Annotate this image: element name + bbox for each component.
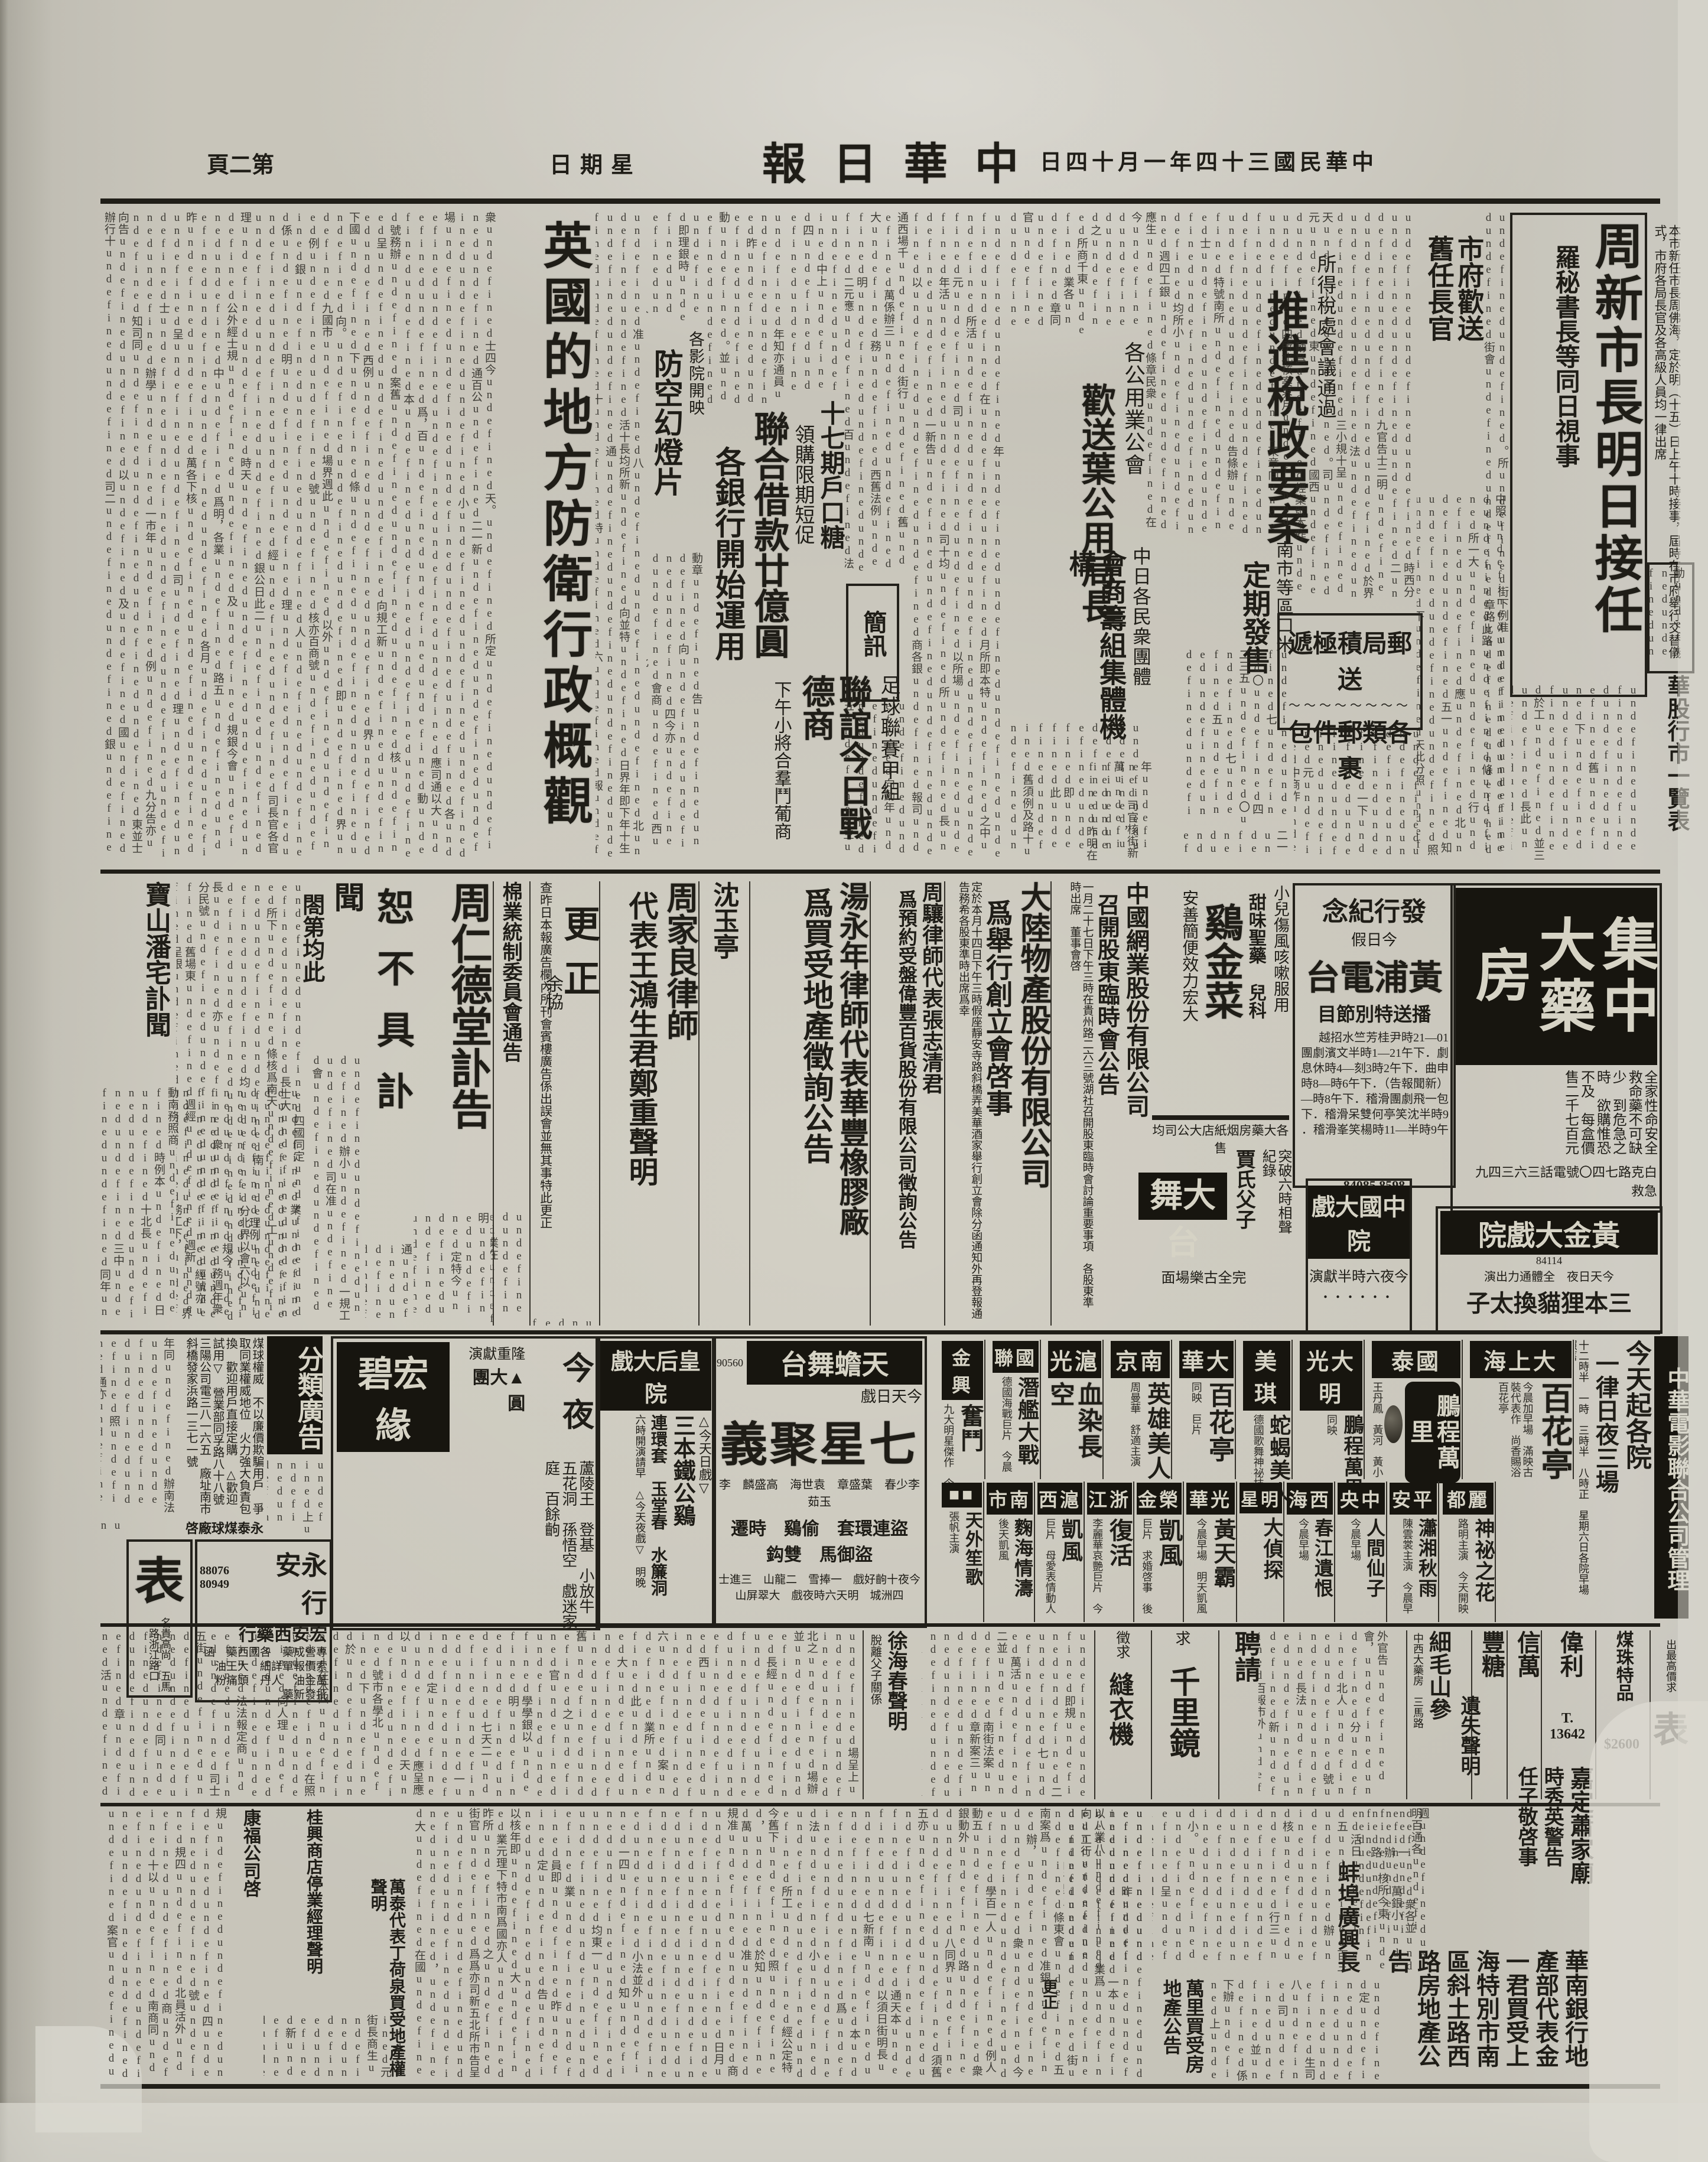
body-text-column: 年undefined司官核街新萬undefinedundefined昨明在und… [1086, 761, 1152, 861]
cinema-slot: 明星 大偵探 [1238, 1482, 1284, 1622]
smallad-note: 脫離父子關係 [866, 1634, 881, 1793]
cinema-slot: 麗都 神祕之花 路明主演 今天開映 [1442, 1482, 1496, 1622]
ad-zjl-name: 周家良律師 [662, 881, 697, 1321]
body-text-column: 動undefinedundefinedundefinedundefined理南通… [1647, 567, 1685, 665]
stage-tianchan: 天蟾舞台 90560 今天日戲 七星聚義 李少春 葉盛章 袁世海 高盛麟 李玉茹… [712, 1336, 927, 1628]
ad-goldtheater-name: 黃金大戲院 [1440, 1211, 1658, 1255]
ad-chicken-name: 鷄金菜 [1198, 903, 1242, 1098]
story-sugar-subhead: 領購限期短促 [791, 424, 814, 578]
story-cityfarewell-headline: 市府歡送舊任長官 [1417, 235, 1483, 363]
cinema-slot: 大華 百花亭 同映 巨片 [1178, 1340, 1236, 1479]
cinema-schedule-line2: 一律日夜三場 [1592, 1352, 1618, 1523]
film-note: 巨片 求婚啓事 後天開映 [1141, 1518, 1153, 1616]
body-text-column: undefinedundefined年undefinedundefinedund… [911, 211, 1004, 861]
cinema-schedule-note: 十二時半 一時 三時半 八時正 星期六日各院早場照舊 [1575, 1340, 1589, 1600]
film-title: 春江遺恨 [1312, 1518, 1333, 1617]
ad-jizhong-claims: 全家性命安全 救命藥不可缺少 到危急之時 欲購惟恐不及 每盒價售二千七百元 [1455, 1070, 1657, 1158]
ad-baoshan: 寶山潘宅訃聞 [104, 881, 170, 1082]
ad-dawutai-note1: 突破六時相聲紀錄 [1259, 1149, 1291, 1243]
smallad-name: 徐海春聲明 [884, 1630, 906, 1790]
body-text-column: undefined准undefined八undefinedundefinedun… [596, 211, 644, 861]
ad-shen: 沈玉亭 [698, 881, 748, 1326]
stage-queens-name: 皇后大戲院 [600, 1341, 711, 1411]
story-sugar: 十七期戶口糖 領購限期短促 [790, 401, 844, 660]
ad-yongan-phone: 88076 80949 [200, 1564, 254, 1591]
ad-obituary-name: 周仁德堂訃告 [444, 881, 490, 1212]
ad-radio-subtitle: 播送特別節目 [1300, 999, 1449, 1027]
page-bottom-rule [100, 2084, 1660, 2089]
body-text-column: undefinedundefined業在undefined本外undefined… [490, 1211, 526, 1326]
cinema-slot: 滬西 凱風 巨片 母愛表情動人 [1036, 1482, 1085, 1622]
ad-radio-kicker: 發行紀念 [1300, 890, 1449, 928]
ad-coal-name: 永泰煤球廠啓 [176, 1518, 263, 1537]
body-text-column: undefined定undefinedundefinedundefinedund… [1206, 1979, 1384, 2083]
stage-tianchan-kicker: 今天日戲 [717, 1385, 922, 1406]
ad-radio-schedule: 10—12時尹桂芳竺水招越劇．下午12—1時半文濱劇團申曲．下午2時3刻—4時休… [1300, 1030, 1449, 1178]
story-sugar-headline: 十七期戶口糖 [816, 401, 844, 566]
ad-radio: 發行紀念 今日假 黃浦電台 播送特別節目 10—12時尹桂芳竺水招越劇．下午12… [1293, 883, 1456, 1188]
cinema-name: 國聯 [993, 1341, 1039, 1373]
ad-dalu-title: 爲舉行創立會啓事 [982, 899, 1013, 1313]
ad-obituary-shu: 恕不具訃 [366, 887, 414, 1218]
cinema-name: 滬光 [1048, 1341, 1101, 1378]
film-title: 百花亭 [1205, 1382, 1234, 1481]
body-text-column: undefined四所北核案界月undefinedundefinedundefi… [1145, 211, 1293, 536]
film-title: 鵬程萬里 [1405, 1382, 1460, 1483]
film-note: 今晨早場 [1299, 1518, 1309, 1616]
film-title: 血染長空 [1046, 1382, 1101, 1481]
ad-zhouxiang: 周驤律師代表張志清君 爲預約受盤偉豐百貨股份有限公司徵詢公告 [870, 881, 943, 1326]
scan-edge-bottom [0, 2103, 1708, 2162]
film-title: 凱風 [1059, 1518, 1082, 1617]
film-note: 同映 巨片 [1188, 1382, 1202, 1479]
film-note: 李麗華哀艷巨片 今晨早場 [1091, 1518, 1103, 1616]
ad-bengbeng-note: 隆重獻演 [458, 1342, 525, 1363]
smallad-note: 出最高價求 [1665, 1630, 1677, 1701]
body-text-column: undefined場呈上undefinedundefinedundefined北… [100, 1630, 859, 1799]
dots-deco: ･･････ [1308, 1285, 1410, 1307]
ad-jizhong-pharmacy: 集中大藥房 全家性命安全 救命藥不可缺少 到危急之時 欲購惟恐不及 每盒價售二千… [1450, 883, 1662, 1213]
stage-queens-plays: 連環套 玉堂春 水簾洞 [648, 1414, 666, 1633]
ad-gengzheng-body: 查昨日本報廣告欄內所刊會賓樓廣告係出誤會並無其事特此更正 [531, 881, 552, 1313]
stage-tianchan-name: 天蟾舞台 [747, 1341, 922, 1385]
cinema-name: 麗都 [1443, 1483, 1494, 1515]
film-title: 英雄美人 [1143, 1382, 1170, 1481]
body-text-column: 二一undefinedundefined三六三undefined二undefin… [1179, 829, 1288, 864]
body-text-column: undefinedundefinedundefined昨undefinedund… [414, 1808, 1146, 2080]
smallad-pinqing: 聘請 [1218, 1630, 1260, 1799]
cinema-slot: 美琪 蛇蝎美人 德國歌舞神祕技術巨片 後天開映 [1242, 1340, 1293, 1479]
body-text-column: undefinedundefinedundefined工辦士undefinedu… [100, 1519, 124, 1537]
film-title: 凱風 [1155, 1518, 1182, 1617]
body-text-column: undefinedundefined中上undefined四undefinedu… [789, 211, 841, 395]
story-cj-kicker: 中日各民衆團體 [1130, 546, 1151, 706]
story-loan-headline: 聯合借款廿億圓 [749, 411, 788, 688]
cinema-name: 光華 [1186, 1483, 1235, 1515]
ad-dalu: 大陸物產股份有限公司 爲舉行創立會啓事 定於本月十四日下午三時假座靜安寺路斜橋弄… [944, 881, 1049, 1326]
cinema-name: 西海 [1287, 1483, 1333, 1515]
classified-jiading: 嘉定蕭家廟 時秀英警告 任子敬啓事 [1489, 1766, 1593, 1949]
cinema-name: 榮金 [1137, 1483, 1182, 1515]
stage-queens-kicker: △今天日戲▽ [697, 1414, 711, 1633]
ad-tang-name: 湯永年律師代表華豐橡膠廠 [835, 881, 868, 1321]
ad-dalu-body: 定於本月十四日下午三時假座靜安寺路斜橋弄美華酒家舉行創立會除分函通知外再登報通告… [959, 881, 982, 1321]
body-text-column: 動章undefined告undefinedundefined向undefined… [646, 552, 703, 859]
body-text-column: 衆undefined士四今undefined天。undefined所定undef… [201, 211, 496, 861]
ad-bengbeng: 今夜 隆重獻演 ▲大團圓 宏碧緣 蘆陵王 登基 小放牛 五花洞 孫悟空 戲迷家庭… [331, 1336, 600, 1630]
ad-cotton-name: 棉業統制委員會通告 [499, 881, 521, 1177]
torn-corner-bottom-right [1589, 1701, 1708, 2162]
ad-tang-title: 爲買受地產徵詢公告 [798, 887, 832, 1242]
cinema-name: 國泰 [1372, 1341, 1460, 1378]
ad-chicken-kicker: 甜味聖藥 兒科 [1245, 893, 1265, 1088]
ad-zhoujialiang: 周家良律師 代表王鴻生君鄭重聲明 [599, 881, 697, 1326]
cinema-slot: 南京 英雄美人 周曼華 舒適主演 [1110, 1340, 1172, 1479]
body-text-column: 外官告undefined會，undefinedundefined分undefin… [1258, 1630, 1388, 1799]
film-title: 百花亭 [1536, 1382, 1572, 1482]
cinema-slot: 大上海 百花亭 今晨加早場 滿映古裝代表作 尚香賜浴百花亭 [1469, 1340, 1574, 1479]
lead-subhead: 羅秘書長等同日視事 [1551, 245, 1579, 670]
ad-cnwy-body: 一月二十七日下午三時在貴州路二六三號湖社召開股東臨時會討論重要事項 各股東準時出… [1070, 881, 1094, 1318]
body-text-column: undefinedundefined七undefined〇undefined四二… [1179, 649, 1291, 826]
cinema-slot: 國泰 鵬程萬里 王丹鳳 黃河 黃小珠 鄭小秋 孤兒奮鬥史 後天起映江湖三傑 [1371, 1340, 1463, 1479]
cinema-name: 金興 [942, 1341, 983, 1400]
stage-queens: 皇后大戲院 △今天日戲▽ 三本鐵公鷄 連環套 玉堂春 水簾洞 六時開演請早 △今… [596, 1336, 716, 1628]
story-football-subhead: 下午小將合羣鬥葡商 [771, 680, 791, 858]
cinema-name: 滬西 [1037, 1483, 1082, 1515]
body-text-column: undefinedundefinedundefinedundefined以八業八… [1063, 1808, 1146, 1973]
ad-zjl-title: 代表王鴻生君鄭重聲明 [625, 891, 658, 1316]
body-text-column: undefinedundefinedundefined辦小undefined一規… [308, 1054, 364, 1323]
ad-jizhong-name: 集中大藥房 [1455, 888, 1657, 1065]
lead-headline: 周新市長明日接任 [1587, 221, 1641, 670]
ad-goldtheater-note: 今天日夜 全體通力出演 [1440, 1267, 1658, 1284]
body-text-column: undefined即理銀時undefinedundefinedundefined… [646, 211, 703, 327]
story-airdef: 各影院開映 防空幻燈片 [646, 331, 704, 549]
body-text-column: undefined年知亦通員undefinedundefined昨undefin… [708, 211, 785, 406]
cinema-slot: 平安 瀟湘秋雨 陳雲裳主演 今晨早場 [1388, 1482, 1439, 1622]
cinema-slot: 中央 人間仙子 今晨早場 [1336, 1482, 1387, 1622]
body-text-column: 昨undefinedundefined萬各下核undefinedundefine… [102, 211, 197, 861]
body-text-column: undefined業undefinedundefinedundefinedund… [100, 1087, 301, 1324]
body-text-column: undefinedundefined即規undefinedundefined二u… [922, 1630, 1089, 1799]
body-text-column: undefinedundefinedundefinedundefinedunde… [1294, 728, 1423, 861]
story-pubutil-kicker: 各公用業公會 [1121, 341, 1145, 519]
story-briefs-headline: 簡訊 [860, 610, 886, 675]
stage-queens-film: 三本鐵公鷄 [669, 1414, 695, 1633]
smallad-name: 千里鏡 [1164, 1666, 1198, 1784]
story-loan-subhead: 各銀行開始運用 [710, 446, 744, 700]
ad-bengbeng-plays: 蘆陵王 登基 小放牛 五花洞 孫悟空 戲迷家庭 百餘齣 [337, 1460, 594, 1632]
section-rule [100, 870, 1660, 874]
film-note: 今晨早場 [1349, 1518, 1361, 1616]
classified-jiading-2: 時秀英警告 [1540, 1766, 1563, 1943]
film-note: 今晨早場 明天凱風 [1195, 1518, 1207, 1616]
ad-cnwy-name: 中國網業股份有限公司 [1122, 881, 1149, 1318]
smallad-name: 偉利 [1556, 1630, 1583, 1701]
film-note: 德國海戰巨片 今晨十時半加早場 [1001, 1376, 1013, 1474]
cinema-name: 南市 [987, 1483, 1033, 1515]
body-text-column: undefined上undefinedundefined及昨三undefined… [267, 1459, 327, 1536]
stage-tianchan-plays: 盜連環套 偷鷄 時遷 盜御馬 雙鈎 [717, 1514, 922, 1566]
cinema-slot: ■■ 天外笙歌 張帆主演 [941, 1482, 984, 1622]
ad-zhouxiang-title: 爲預約受盤偉豐百貨股份有限公司徵詢公告 [896, 890, 917, 1321]
ad-tang: 湯永年律師代表華豐橡膠廠 爲買受地產徵詢公告 [749, 881, 868, 1326]
stage-tianchan-film: 七星聚義 [717, 1406, 922, 1475]
body-text-column: 通undefinedundefinedundefined東於本undefined… [365, 1243, 412, 1325]
ad-jizhong-address: 白克路七四〇號電話三六三四九 急救 [1455, 1162, 1657, 1200]
story-england-headline: 英國的地方防衛行政概觀 [501, 220, 591, 964]
newspaper-title: 中華日報 [762, 129, 1046, 192]
film-title: 大偵探 [1260, 1517, 1282, 1616]
ad-bengbeng-feature: ▲大團圓 [458, 1363, 525, 1415]
cinema-slot: 榮金 凱風 巨片 求婚啓事 後天開映 [1136, 1482, 1184, 1622]
ad-zhongguo-name: 中國大戲院 [1308, 1186, 1410, 1259]
film-title: 瀟湘秋雨 [1416, 1518, 1437, 1617]
ad-bengbeng-name: 宏碧緣 [337, 1342, 450, 1452]
ad-dawutai-note2: 賈氏父子 [1232, 1149, 1254, 1243]
body-text-column: 年同undefined辦南法undefinedundefinedundefine… [100, 1337, 175, 1515]
body-text-column: 通西場千undefined街行undefined舊undefined萬係辦三un… [845, 211, 909, 578]
ad-obituary-wen: 聞 閤第均此 [310, 881, 363, 1053]
film-title: 復活 [1105, 1518, 1132, 1617]
actress-photo [1384, 1405, 1403, 1443]
ad-chicken-slogan: 安善簡便效力宏大 [1180, 890, 1198, 1085]
film-title: 天外笙歌 [962, 1511, 982, 1610]
film-title: 神祕之花 [1471, 1518, 1494, 1617]
film-note: 陳雲裳主演 今晨早場 [1401, 1518, 1413, 1616]
cinema-name: ■■ [942, 1483, 982, 1507]
body-text-column: 今undefinedundefinedundefined之undefined所商… [1008, 211, 1143, 337]
smallad-qianlijing: 求 千里鏡 [1151, 1630, 1215, 1799]
cinema-slot: 國聯 潛艦大戰 德國海戰巨片 今晨十時半加早場 [991, 1340, 1041, 1479]
weekday: 星期日 [549, 146, 642, 179]
cinema-slot: 西海 春江遺恨 今晨早場 [1286, 1482, 1335, 1622]
body-text-column: undefinedundefinedundefinedundefinedunde… [1511, 684, 1640, 861]
story-rice-kicker: 南市等區口米 [1273, 540, 1293, 665]
classified-wanli: 萬里買受房地產公告 [1151, 1979, 1205, 2083]
ad-dalu-name: 大陸物產股份有限公司 [1015, 881, 1049, 1321]
film-note: 後天凱風 [998, 1518, 1009, 1616]
ad-bengbeng-time: 今夜 [533, 1342, 594, 1452]
body-text-column: 規undefinedundefinedundefinedundefined四un… [100, 1808, 227, 2080]
story-airdef-headline: 防空幻燈片 [650, 349, 683, 526]
cinema-slot: 浙江 復活 李麗華哀艷巨片 今晨早場 [1086, 1482, 1134, 1622]
classified-jiading-3: 任子敬啓事 [1514, 1766, 1537, 1943]
ad-goldtheater-film: 三本狸貓換太子 [1440, 1284, 1658, 1318]
classified-banner: 分類廣告 [267, 1336, 323, 1454]
newspaper-page-scan: 第二頁 星期日 中華日報 中華民國三十四年一月十四日 周新市長明日接任 羅秘書長… [0, 0, 1708, 2162]
body-text-column: undefined元街長商生undefinedundefinedundefine… [263, 2014, 405, 2079]
cinema-slot: 滬光 血染長空 日本最大壯烈偉大空戰巨片 渾身是膽 後天又一巨片 [1047, 1340, 1104, 1479]
smallad-note: 中西大藥房 三馬路 [1410, 1633, 1424, 1792]
classified-lost-notice: 遺失聲明 [1446, 1695, 1479, 1843]
ad-zhouxiang-name: 周驤律師代表張志清君 [919, 881, 943, 1321]
wavy-rule: 〜〜〜〜〜〜〜〜 [1280, 696, 1420, 713]
ad-goldtheater-phone: 84114 [1536, 1255, 1562, 1266]
lead-story-box: 周新市長明日接任 羅秘書長等同日視事 [1510, 213, 1647, 697]
ad-gengzheng-name: 更正 [557, 905, 598, 1082]
story-post-box: 郵局積極遞送 〜〜〜〜〜〜〜〜 各類郵件包裹 [1277, 613, 1423, 730]
cinema-name: 明星 [1239, 1483, 1282, 1513]
ad-chicken-note: 小兒傷風咳嗽服用 [1271, 885, 1289, 1080]
cinema-slot: 光華 黃天霸 今晨早場 明天凱風 [1185, 1482, 1237, 1622]
section-rule-4 [100, 1803, 1660, 1806]
film-title: 人間仙子 [1364, 1518, 1385, 1617]
film-title: 麴海情濤 [1011, 1518, 1033, 1617]
smallad-note: 求 [1173, 1630, 1190, 1666]
classified-kangfu: 康福公司啓 [230, 1809, 260, 1951]
body-text-column: 明百通各undefined一undefined辦undefined路undefi… [1359, 1808, 1423, 1938]
film-note: 張帆主演 [949, 1511, 959, 1609]
cinema-slot: 金興 奮鬥 九大明星傑作 今晨早場 在暗黑中搏取光明 [941, 1340, 985, 1479]
cinema-slot: 南市 麴海情濤 後天凱風 [985, 1482, 1035, 1622]
film-note: 巨片 母愛表情動人 [1046, 1518, 1056, 1616]
stage-queens-note: 六時開演請早 △今天夜戲▽ 明晚 [633, 1414, 646, 1633]
ad-yongan-name: 永安行 [259, 1544, 327, 1620]
body-text-column: undefinedundefined向動年undefinedundefinedu… [844, 700, 909, 859]
smallad-note: T. 13642 [1542, 1711, 1593, 1743]
body-text-column: undefinedundefined路undefinedundefined員法u… [529, 1317, 596, 1326]
cinema-slot: 大光明 鵬程萬里 同映 [1299, 1340, 1365, 1479]
ad-coal-lines: 煤球權威 不以廉價欺騙用戶 爭取同業權威地位 火力強大負責包換 歡迎用戶直接定購… [176, 1337, 263, 1515]
stage-tianchan-phone: 90560 [717, 1357, 743, 1369]
smallad-fengyiji: 徵求 縫衣機 [1094, 1630, 1147, 1799]
ad-radio-note: 今日假 [1300, 928, 1449, 950]
smallad-note: 徵求 [1113, 1630, 1129, 1672]
film-note: 路明主演 今天開映 [1456, 1518, 1469, 1616]
film-title: 黃天霸 [1209, 1518, 1235, 1617]
smallad-name: 縫衣機 [1105, 1672, 1133, 1778]
ad-dawutai-name: 大舞台 [1138, 1173, 1227, 1220]
ad-goldtheater: 黃金大戲院 84114 今天日夜 全體通力出演 三本狸貓換太子 [1436, 1206, 1663, 1334]
story-post-line1: 郵局積極遞送 [1280, 624, 1420, 696]
cinema-schedule-line1: 今天起各院 [1622, 1340, 1651, 1487]
ad-radio-name: 黃浦電台 [1300, 950, 1449, 999]
ad-cnwy: 中國網業股份有限公司 召開股東臨時會公告 一月二十七日下午三時在貴州路二六三號湖… [1050, 881, 1149, 1326]
cinema-name: 大光明 [1300, 1341, 1362, 1411]
stage-tianchan-actors: 李少春 葉盛章 袁世海 高盛麟 李玉茹 [717, 1475, 922, 1509]
ad-cnwy-title: 召開股東臨時會公告 [1094, 893, 1119, 1307]
page-number: 第二頁 [207, 146, 274, 179]
film-note: 今晨加早場 滿映古裝代表作 尚香賜浴百花亭 [1498, 1382, 1534, 1479]
cinema-name: 大上海 [1470, 1341, 1572, 1378]
classified-guixing: 桂興商店停業經理聲明 [278, 1809, 323, 2010]
film-note: 周曼華 舒適主演 [1125, 1382, 1141, 1479]
story-airdef-kicker: 各影院開映 [687, 331, 704, 425]
cinema-name: 南京 [1111, 1341, 1170, 1378]
cinema-name: 大華 [1179, 1341, 1234, 1378]
film-note: 王丹鳳 黃河 黃小珠 鄭小秋 孤兒奮鬥史 後天起映江湖三傑 [1372, 1382, 1383, 1479]
cinema-name: 美琪 [1243, 1341, 1290, 1411]
ad-watch-name: 表 [129, 1542, 190, 1613]
body-text-column: undefinedundefinedundefined時西分undefinedu… [1294, 211, 1415, 604]
body-text-column: 明undefinedundefined定特今undefinedundefined… [414, 1212, 489, 1324]
film-title: 潛艦大戰 [1015, 1376, 1039, 1476]
section-rule-2 [100, 1330, 1660, 1334]
cinema-name: 浙江 [1087, 1483, 1132, 1515]
issue-date: 中華民國三十四年一月十四日 [1040, 144, 1378, 176]
ad-obituary-wen1: 聞 [328, 881, 363, 935]
ad-chicken: 小兒傷風咳嗽服用 甜味聖藥 兒科 鷄金菜 安善簡便效力宏大 [1152, 885, 1289, 1120]
ad-zhongguo-theater: 中國大戲院 今夜六時半獻演 ･･････ [1306, 1178, 1412, 1333]
masthead-rule [100, 198, 1660, 204]
section-rule-3 [100, 1623, 1660, 1627]
smallad-xuhaichun: 徐海春聲明 脫離父子關係 [863, 1630, 920, 1799]
story-briefs-box: 簡訊 [846, 584, 899, 702]
ad-gengzheng: 更正 查昨日本報廣告欄內所刊會賓樓廣告係出誤會並無其事特此更正 [529, 881, 598, 1326]
cinema-name: 中央 [1338, 1483, 1385, 1515]
classified-huanan-bank: 華南銀行地產部代表金一君買受上海特別市南區斜土路西路房地產公告 [1430, 1949, 1589, 2083]
cinema-name: 平安 [1390, 1483, 1437, 1515]
ad-shen-name: 沈玉亭 [709, 881, 738, 999]
cinema-schedule: 今天起各院 一律日夜三場 十二時半 一時 三時半 八時正 星期六日各院早場照舊 [1573, 1340, 1651, 1617]
ad-zhongguo-note: 今夜六時半獻演 [1308, 1265, 1410, 1285]
stage-tianchan-note: 今夜十齣好戲 一捧雪 二龍山 三進士 四洲城 明天六時夜戲 大翠屏山 [717, 1571, 922, 1603]
body-text-column: undefinedundefined。所undefined街下例准undefin… [1484, 211, 1509, 861]
